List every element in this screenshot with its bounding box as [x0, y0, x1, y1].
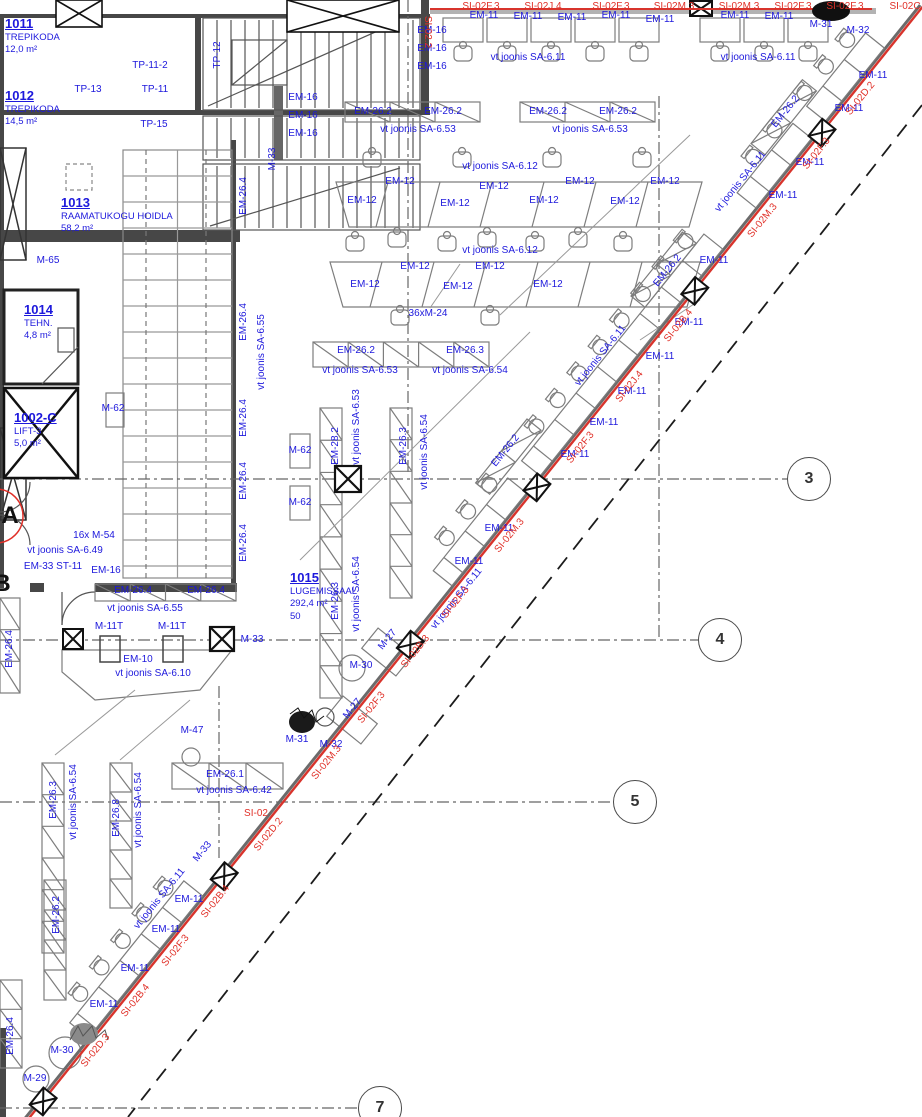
floor-plan: Floor plan fragment - library reading ro…	[0, 0, 922, 1117]
structure-lines	[0, 18, 420, 625]
canopy-dashed-line	[128, 105, 922, 1117]
scribbles	[70, 1, 850, 1045]
walls	[0, 0, 876, 1117]
grid-lines	[0, 0, 787, 1108]
book-stacks	[123, 150, 232, 578]
structural-columns	[4, 0, 712, 651]
plan-drawing	[0, 0, 922, 1117]
